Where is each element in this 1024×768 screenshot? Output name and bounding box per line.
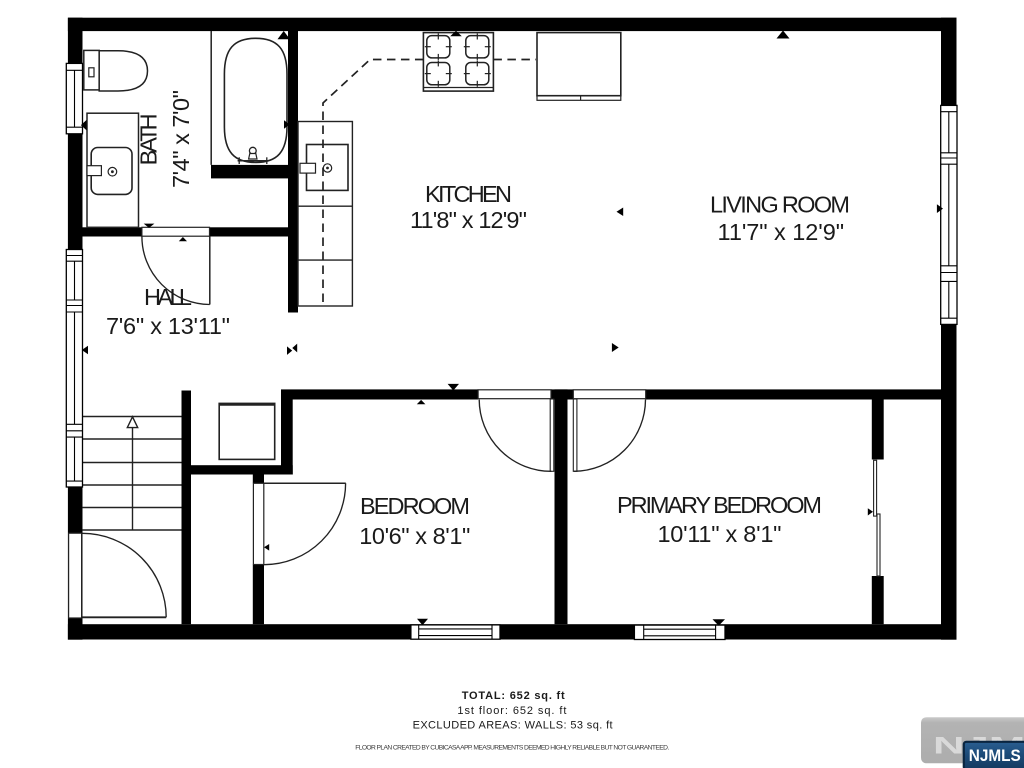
svg-text:PRIMARY BEDROOM: PRIMARY BEDROOM	[617, 492, 822, 518]
svg-text:BATH: BATH	[135, 113, 161, 165]
svg-text:7'4" x 7'0": 7'4" x 7'0"	[168, 90, 194, 188]
svg-text:11'8" x 12'9": 11'8" x 12'9"	[410, 207, 527, 233]
svg-text:BEDROOM: BEDROOM	[360, 493, 470, 519]
svg-text:11'7" x 12'9": 11'7" x 12'9"	[718, 219, 845, 245]
svg-text:7'6" x 13'11": 7'6" x 13'11"	[106, 313, 230, 339]
svg-text:10'6" x 8'1": 10'6" x 8'1"	[359, 523, 470, 549]
svg-text:KITCHEN: KITCHEN	[425, 181, 512, 207]
svg-text:NJMLS: NJMLS	[969, 746, 1021, 765]
svg-text:1st floor: 652 sq. ft: 1st floor: 652 sq. ft	[457, 705, 566, 717]
svg-text:LIVING ROOM: LIVING ROOM	[710, 192, 850, 218]
svg-text:HALL: HALL	[144, 284, 192, 310]
svg-text:TOTAL: 652 sq. ft: TOTAL: 652 sq. ft	[462, 690, 565, 702]
svg-text:FLOOR PLAN CREATED BY CUBICASA: FLOOR PLAN CREATED BY CUBICASA APP. MEAS…	[355, 744, 669, 751]
svg-text:EXCLUDED AREAS: WALLS: 53 sq.: EXCLUDED AREAS: WALLS: 53 sq. ft	[413, 720, 613, 732]
svg-text:10'11" x 8'1": 10'11" x 8'1"	[658, 521, 782, 547]
